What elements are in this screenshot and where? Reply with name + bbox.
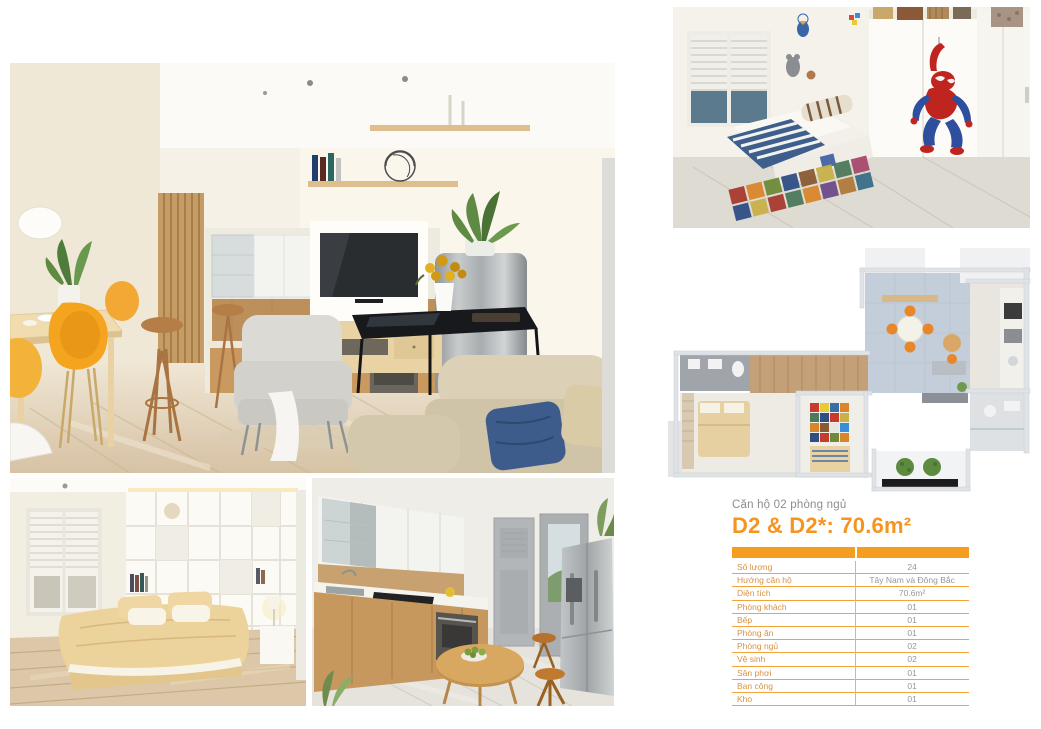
spec-row-value: 01 bbox=[855, 615, 969, 625]
spec-row-label: Bếp bbox=[732, 615, 855, 625]
spec-row: Phòng ngủ 02 bbox=[732, 640, 969, 653]
living-room-photo bbox=[10, 63, 615, 473]
master-bedroom-photo bbox=[10, 478, 306, 706]
spec-row-label: Vệ sinh bbox=[732, 654, 855, 664]
spec-row-value: 01 bbox=[855, 681, 969, 691]
master-bedroom-render-graphic bbox=[10, 478, 306, 706]
spec-table-body: Số lượng 24 Hướng căn hộ Tây Nam và Đông… bbox=[732, 561, 969, 706]
spec-row-label: Phòng ngủ bbox=[732, 641, 855, 651]
spec-table: Số lượng 24 Hướng căn hộ Tây Nam và Đông… bbox=[732, 561, 969, 706]
spec-row-value: 01 bbox=[855, 628, 969, 638]
spec-row-value: 02 bbox=[855, 641, 969, 651]
table-header-bar bbox=[732, 547, 969, 558]
spec-row: Phòng khách 01 bbox=[732, 601, 969, 614]
brochure-page: { "page": { "subtitle": "Căn hộ 02 phòng… bbox=[0, 0, 1041, 729]
spec-row: Sân phơi 01 bbox=[732, 667, 969, 680]
spec-row-value: 01 bbox=[855, 602, 969, 612]
apartment-title: D2 & D2*: 70.6m² bbox=[732, 513, 969, 539]
spec-row: Bếp 01 bbox=[732, 614, 969, 627]
apartment-info-panel: Căn hộ 02 phòng ngủ D2 & D2*: 70.6m² Số … bbox=[732, 499, 969, 706]
spec-row: Hướng căn hộ Tây Nam và Đông Bắc bbox=[732, 574, 969, 587]
spec-table-column-divider bbox=[855, 561, 856, 706]
living-room-render-graphic bbox=[10, 63, 615, 473]
spec-row-label: Ban công bbox=[732, 681, 855, 691]
spec-row: Kho 01 bbox=[732, 693, 969, 706]
kids-bedroom-render-graphic bbox=[673, 7, 1030, 228]
spec-row: Số lượng 24 bbox=[732, 561, 969, 574]
kitchen-photo bbox=[312, 478, 614, 706]
spec-row: Ban công 01 bbox=[732, 680, 969, 693]
spec-row-value: 01 bbox=[855, 694, 969, 704]
apartment-subtitle: Căn hộ 02 phòng ngủ bbox=[732, 499, 969, 511]
kitchen-render-graphic bbox=[312, 478, 614, 706]
kids-bedroom-photo bbox=[673, 7, 1030, 228]
spec-row-label: Phòng khách bbox=[732, 602, 855, 612]
spec-row: Vệ sinh 02 bbox=[732, 653, 969, 666]
spec-row-value: 70.6m² bbox=[855, 588, 969, 598]
floor-plan-render-graphic bbox=[660, 243, 1040, 495]
spec-row-value: Tây Nam và Đông Bắc bbox=[855, 575, 969, 585]
table-header-divider bbox=[855, 547, 857, 558]
spec-row-label: Hướng căn hộ bbox=[732, 575, 855, 585]
floor-plan-image bbox=[660, 243, 1040, 495]
spec-row-label: Diện tích bbox=[732, 588, 855, 598]
spec-row-value: 24 bbox=[855, 562, 969, 572]
spec-row-label: Số lượng bbox=[732, 562, 855, 572]
spec-row-label: Phòng ăn bbox=[732, 628, 855, 638]
spec-row: Phòng ăn 01 bbox=[732, 627, 969, 640]
spec-row: Diện tích 70.6m² bbox=[732, 587, 969, 600]
spec-row-label: Sân phơi bbox=[732, 668, 855, 678]
spec-row-label: Kho bbox=[732, 694, 855, 704]
spec-row-value: 02 bbox=[855, 654, 969, 664]
spec-row-value: 01 bbox=[855, 668, 969, 678]
